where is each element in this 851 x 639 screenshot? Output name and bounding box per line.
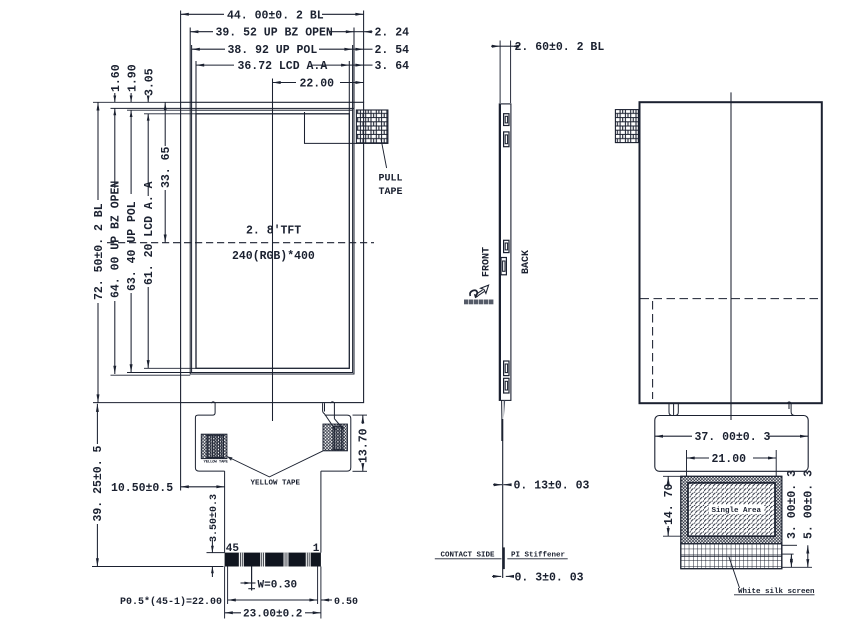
- svg-text:240(RGB)*400: 240(RGB)*400: [232, 250, 315, 263]
- svg-text:22.00: 22.00: [300, 78, 335, 91]
- svg-text:13.70: 13.70: [358, 428, 371, 463]
- svg-text:0. 3±0. 03: 0. 3±0. 03: [515, 571, 584, 584]
- svg-text:33. 65: 33. 65: [160, 146, 173, 188]
- svg-text:P0.5*(45-1)=22.00: P0.5*(45-1)=22.00: [120, 596, 222, 608]
- svg-text:0.50: 0.50: [334, 597, 358, 608]
- svg-text:23.00±0.2: 23.00±0.2: [243, 609, 302, 621]
- svg-text:38. 92 UP POL: 38. 92 UP POL: [228, 44, 318, 57]
- svg-text:63. 40 UP POL: 63. 40 UP POL: [126, 201, 139, 291]
- svg-text:CONTACT SIDE: CONTACT SIDE: [441, 551, 496, 559]
- svg-text:BACK: BACK: [521, 250, 532, 274]
- svg-text:1.60: 1.60: [110, 64, 123, 92]
- svg-text:61. 20 LCD A. A: 61. 20 LCD A. A: [143, 181, 156, 285]
- svg-text:10.50±0.5: 10.50±0.5: [111, 482, 173, 495]
- svg-text:21.00: 21.00: [712, 453, 747, 466]
- svg-text:3. 00±0. 3: 3. 00±0. 3: [786, 470, 799, 539]
- svg-text:37. 00±0. 3: 37. 00±0. 3: [695, 431, 771, 444]
- svg-text:PULL: PULL: [379, 174, 403, 185]
- svg-text:2. 60±0. 2 BL: 2. 60±0. 2 BL: [515, 41, 605, 54]
- svg-text:45: 45: [226, 543, 240, 555]
- svg-text:1.90: 1.90: [126, 64, 139, 92]
- svg-text:W=0.30: W=0.30: [258, 580, 298, 592]
- svg-text:PI Stiffener: PI Stiffener: [511, 551, 565, 559]
- svg-text:TAPE: TAPE: [379, 187, 403, 198]
- svg-text:14. 70: 14. 70: [663, 483, 676, 525]
- svg-text:1: 1: [313, 543, 320, 555]
- svg-text:39. 25±0. 5: 39. 25±0. 5: [92, 445, 105, 521]
- svg-text:2. 8'TFT: 2. 8'TFT: [246, 225, 301, 238]
- svg-text:3.50±0.3: 3.50±0.3: [209, 494, 220, 542]
- svg-text:YELLOW TAPE: YELLOW TAPE: [251, 479, 301, 487]
- svg-text:Single Area: Single Area: [712, 507, 762, 515]
- svg-text:2. 24: 2. 24: [375, 27, 410, 40]
- svg-text:5. 00±0. 3: 5. 00±0. 3: [803, 470, 816, 539]
- svg-text:3. 64: 3. 64: [375, 60, 410, 73]
- svg-text:72. 50±0. 2 BL: 72. 50±0. 2 BL: [93, 203, 106, 300]
- svg-text:44. 00±0. 2 BL: 44. 00±0. 2 BL: [227, 9, 324, 22]
- svg-text:64. 00 UP BZ OPEN: 64. 00 UP BZ OPEN: [110, 181, 123, 298]
- svg-text:36.72 LCD A.A: 36.72 LCD A.A: [238, 60, 328, 73]
- svg-text:2. 54: 2. 54: [375, 44, 410, 57]
- svg-text:0. 13±0. 03: 0. 13±0. 03: [514, 480, 590, 493]
- svg-text:3.05: 3.05: [143, 68, 156, 96]
- svg-text:YELLOW TAPE: YELLOW TAPE: [204, 460, 229, 464]
- svg-text:39. 52 UP BZ OPEN: 39. 52 UP BZ OPEN: [216, 27, 333, 40]
- svg-text:FRONT: FRONT: [482, 247, 493, 277]
